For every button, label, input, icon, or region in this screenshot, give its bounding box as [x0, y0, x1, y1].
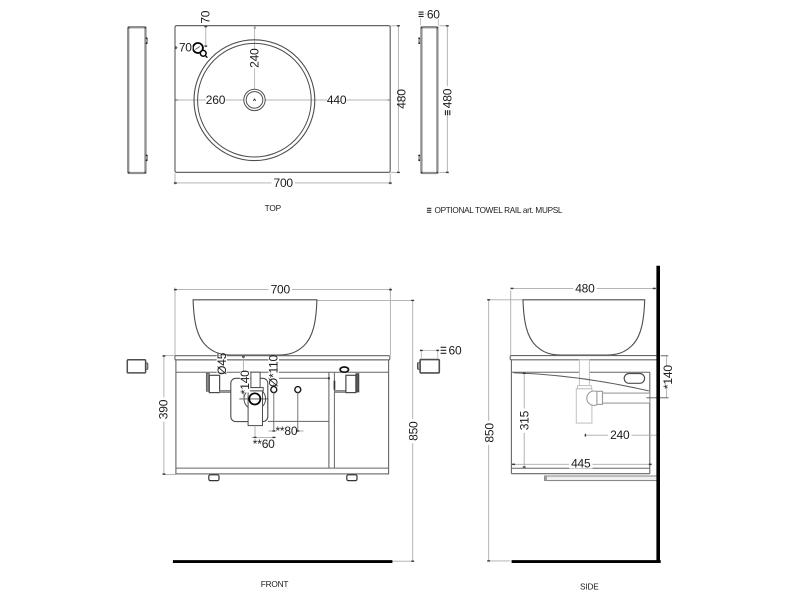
svg-text:60: 60 [427, 7, 440, 21]
svg-text:*140: *140 [661, 365, 675, 389]
svg-text:850: 850 [406, 421, 420, 441]
svg-text:440: 440 [327, 93, 347, 107]
svg-text:TOP: TOP [265, 203, 282, 213]
svg-text:240: 240 [610, 428, 630, 442]
svg-text:OPTIONAL TOWEL RAIL art. MUPSL: OPTIONAL TOWEL RAIL art. MUPSL [435, 206, 563, 215]
svg-text:**60: **60 [253, 437, 275, 451]
svg-text:70: 70 [199, 10, 213, 23]
svg-text:240: 240 [247, 48, 261, 68]
svg-text:480: 480 [441, 88, 455, 108]
svg-text:700: 700 [273, 176, 293, 190]
svg-text:390: 390 [157, 399, 171, 419]
svg-text:70: 70 [179, 41, 192, 55]
svg-text:315: 315 [517, 410, 531, 430]
svg-text:260: 260 [206, 93, 226, 107]
svg-text:FRONT: FRONT [261, 579, 289, 589]
svg-text:60: 60 [449, 344, 462, 358]
svg-text:480: 480 [575, 281, 595, 295]
svg-text:445: 445 [571, 457, 591, 471]
svg-text:700: 700 [271, 283, 291, 297]
svg-text:**80: **80 [275, 424, 297, 438]
svg-text:SIDE: SIDE [580, 582, 599, 592]
svg-text:*140: *140 [238, 370, 252, 394]
svg-text:Ø45: Ø45 [215, 352, 229, 375]
svg-text:480: 480 [394, 89, 408, 109]
svg-text:Ø*110: Ø*110 [267, 355, 281, 388]
svg-text:850: 850 [483, 423, 497, 443]
